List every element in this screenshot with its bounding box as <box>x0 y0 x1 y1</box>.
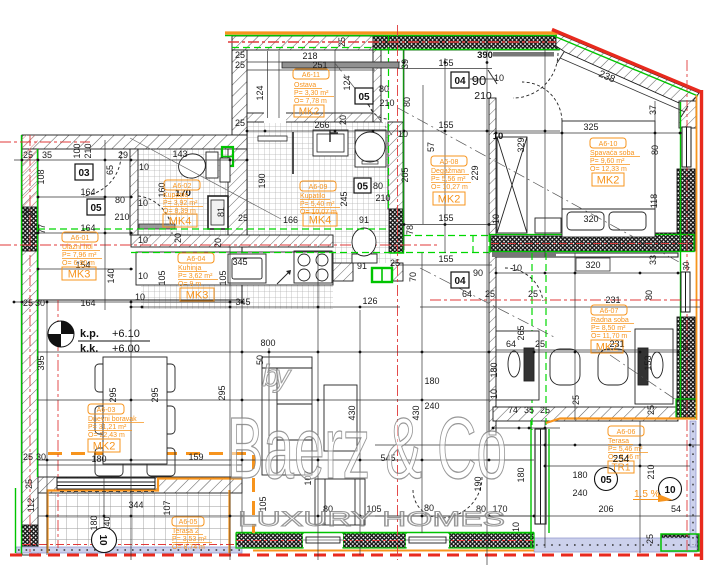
svg-text:O= 9 m: O= 9 m <box>178 281 201 288</box>
svg-text:153: 153 <box>643 355 653 370</box>
svg-text:P= 9,60 m²: P= 9,60 m² <box>590 158 625 165</box>
svg-text:180: 180 <box>89 515 99 530</box>
svg-text:MK2: MK2 <box>438 194 461 206</box>
svg-text:190: 190 <box>257 173 267 188</box>
svg-text:Degažman: Degažman <box>431 168 465 175</box>
svg-text:240: 240 <box>572 488 587 498</box>
svg-text:295: 295 <box>108 387 118 402</box>
svg-text:A6-05: A6-05 <box>179 519 198 526</box>
svg-text:35: 35 <box>42 150 52 160</box>
svg-text:10: 10 <box>511 522 521 532</box>
svg-text:80: 80 <box>402 97 412 107</box>
svg-text:155: 155 <box>438 213 453 223</box>
svg-text:159: 159 <box>188 452 203 462</box>
svg-text:k.p.: k.p. <box>80 328 99 340</box>
svg-text:25: 25 <box>485 289 495 299</box>
svg-text:265: 265 <box>516 325 526 340</box>
svg-text:112: 112 <box>26 498 36 512</box>
svg-text:155: 155 <box>438 254 453 264</box>
svg-text:80: 80 <box>373 181 383 191</box>
svg-text:10: 10 <box>97 534 108 546</box>
svg-text:25: 25 <box>337 37 347 47</box>
svg-text:1.5 %: 1.5 % <box>634 489 660 500</box>
svg-text:A6-04: A6-04 <box>187 256 206 263</box>
svg-text:MK4: MK4 <box>309 215 332 227</box>
svg-text:10: 10 <box>135 292 145 302</box>
svg-text:90: 90 <box>472 73 486 88</box>
svg-text:155: 155 <box>438 58 453 68</box>
svg-text:A6-11: A6-11 <box>302 72 320 79</box>
svg-text:37: 37 <box>648 105 658 115</box>
svg-text:25: 25 <box>390 258 400 268</box>
svg-text:Dnevni boravak: Dnevni boravak <box>88 416 137 423</box>
svg-text:10: 10 <box>512 263 522 273</box>
svg-text:140: 140 <box>106 268 116 283</box>
svg-text:05: 05 <box>358 92 370 103</box>
svg-text:10: 10 <box>398 129 408 139</box>
svg-text:05: 05 <box>357 182 369 193</box>
svg-text:10: 10 <box>138 271 148 281</box>
svg-text:166: 166 <box>283 215 298 225</box>
svg-text:P= 8,50 m²: P= 8,50 m² <box>591 325 626 332</box>
svg-text:33: 33 <box>648 255 658 265</box>
svg-text:124: 124 <box>342 75 352 90</box>
svg-text:210: 210 <box>379 98 394 108</box>
svg-text:MK2: MK2 <box>299 107 320 118</box>
svg-text:345: 345 <box>235 297 250 307</box>
svg-text:25: 25 <box>540 405 550 415</box>
svg-text:MK3: MK3 <box>186 290 209 302</box>
svg-text:P= 7,96 m²: P= 7,96 m² <box>62 252 97 259</box>
svg-text:206: 206 <box>598 504 613 514</box>
svg-text:78: 78 <box>405 225 415 235</box>
svg-text:107: 107 <box>162 500 172 515</box>
svg-text:80: 80 <box>644 290 654 300</box>
svg-text:80: 80 <box>115 195 125 205</box>
svg-text:LUXURY HOMES: LUXURY HOMES <box>238 508 505 531</box>
svg-text:05: 05 <box>600 475 612 486</box>
svg-text:105: 105 <box>157 270 167 285</box>
svg-text:MK2: MK2 <box>597 175 620 187</box>
svg-text:Kuhinja: Kuhinja <box>178 265 201 272</box>
svg-text:10: 10 <box>138 198 148 208</box>
svg-text:245: 245 <box>339 191 349 206</box>
svg-text:O= 22,43 m: O= 22,43 m <box>88 432 125 439</box>
svg-text:25: 25 <box>235 50 245 60</box>
svg-text:+6.00: +6.00 <box>112 343 140 355</box>
svg-text:180: 180 <box>489 362 499 377</box>
svg-text:164: 164 <box>80 187 95 197</box>
svg-text:A6-10: A6-10 <box>599 141 618 148</box>
svg-text:P= 5,46 m²: P= 5,46 m² <box>608 446 643 453</box>
svg-text:64: 64 <box>506 339 516 349</box>
svg-text:25: 25 <box>235 60 245 70</box>
svg-text:35: 35 <box>524 405 534 415</box>
svg-text:25: 25 <box>238 213 248 223</box>
svg-text:Kupatilo: Kupatilo <box>163 192 188 199</box>
svg-text:30: 30 <box>682 261 691 270</box>
svg-text:Baerz & Co: Baerz & Co <box>227 400 507 497</box>
svg-text:25: 25 <box>23 452 33 462</box>
svg-text:320: 320 <box>583 214 598 224</box>
svg-text:74: 74 <box>508 405 518 415</box>
svg-text:10: 10 <box>491 214 501 224</box>
svg-text:25: 25 <box>23 150 33 160</box>
svg-text:MK3: MK3 <box>68 269 91 281</box>
svg-text:Terasa: Terasa <box>608 438 629 445</box>
svg-text:25: 25 <box>24 479 34 489</box>
svg-text:65: 65 <box>105 165 115 175</box>
svg-text:A6-08: A6-08 <box>440 159 459 166</box>
svg-text:231: 231 <box>605 295 620 305</box>
svg-text:320: 320 <box>585 260 600 270</box>
svg-text:Radna soba: Radna soba <box>591 317 629 324</box>
svg-text:295: 295 <box>217 385 227 400</box>
svg-text:05: 05 <box>90 203 102 214</box>
svg-text:390: 390 <box>477 50 493 61</box>
svg-text:124: 124 <box>255 85 265 100</box>
svg-text:P= 3,62 m²: P= 3,62 m² <box>178 273 213 280</box>
svg-text:800: 800 <box>260 338 275 348</box>
svg-text:345: 345 <box>232 257 247 267</box>
svg-text:P= 3,53 m²: P= 3,53 m² <box>172 536 207 543</box>
svg-text:MK2: MK2 <box>93 441 116 453</box>
svg-text:210: 210 <box>114 212 129 222</box>
svg-text:MK4: MK4 <box>169 216 192 228</box>
svg-text:O= 6,90 m: O= 6,90 m <box>62 260 95 267</box>
svg-text:210: 210 <box>646 464 656 479</box>
svg-text:P= 5,56 m²: P= 5,56 m² <box>431 176 466 183</box>
svg-text:77: 77 <box>37 224 47 234</box>
svg-text:03: 03 <box>78 168 90 179</box>
svg-text:Ostava: Ostava <box>294 82 316 89</box>
svg-text:10: 10 <box>493 131 504 142</box>
svg-text:25: 25 <box>646 405 656 415</box>
svg-text:Kupatilo: Kupatilo <box>300 193 325 200</box>
svg-text:A6-07: A6-07 <box>600 308 619 315</box>
svg-text:180: 180 <box>91 454 106 464</box>
svg-text:81: 81 <box>216 207 226 217</box>
svg-text:329: 329 <box>516 137 526 152</box>
svg-text:54: 54 <box>671 504 681 514</box>
svg-text:20: 20 <box>338 115 348 125</box>
svg-text:30: 30 <box>682 342 691 351</box>
svg-text:254: 254 <box>613 454 630 465</box>
svg-text:91: 91 <box>359 215 369 225</box>
svg-text:155: 155 <box>438 120 453 130</box>
svg-text:325: 325 <box>583 122 598 132</box>
svg-text:10: 10 <box>489 389 499 399</box>
svg-text:25: 25 <box>23 298 33 308</box>
svg-text:100: 100 <box>72 143 82 158</box>
svg-text:108: 108 <box>36 169 46 184</box>
svg-text:210: 210 <box>83 143 93 158</box>
svg-text:39: 39 <box>400 59 410 69</box>
svg-text:344: 344 <box>128 500 143 510</box>
svg-text:10: 10 <box>138 235 148 245</box>
svg-text:+6.10: +6.10 <box>112 328 140 340</box>
svg-text:10: 10 <box>139 162 149 172</box>
svg-text:180: 180 <box>516 467 526 482</box>
svg-text:25: 25 <box>528 289 538 299</box>
svg-text:k.k.: k.k. <box>80 343 98 355</box>
svg-text:A6-09: A6-09 <box>309 184 328 191</box>
svg-text:91: 91 <box>357 261 367 271</box>
svg-text:25: 25 <box>235 118 245 128</box>
svg-text:by: by <box>262 358 293 393</box>
svg-text:30: 30 <box>35 298 45 308</box>
svg-text:126: 126 <box>362 296 377 306</box>
svg-text:70: 70 <box>408 272 418 282</box>
svg-text:164: 164 <box>80 298 95 308</box>
svg-text:Terasa 2: Terasa 2 <box>172 528 199 535</box>
svg-text:A6-06: A6-06 <box>617 429 636 436</box>
svg-text:25: 25 <box>23 207 33 217</box>
svg-text:229: 229 <box>470 165 480 180</box>
svg-text:A6-03: A6-03 <box>97 407 116 414</box>
svg-text:20: 20 <box>213 238 223 248</box>
svg-text:118: 118 <box>649 194 659 208</box>
svg-text:O= 11,70 m: O= 11,70 m <box>591 333 627 340</box>
svg-text:P= 3,92 m²: P= 3,92 m² <box>163 200 198 207</box>
svg-text:80: 80 <box>650 145 660 155</box>
svg-text:04: 04 <box>454 76 466 87</box>
svg-text:P= 31,21 m²: P= 31,21 m² <box>88 424 127 431</box>
svg-text:P= 3,30 m²: P= 3,30 m² <box>294 90 329 97</box>
svg-text:O= 10,27 m: O= 10,27 m <box>431 184 468 191</box>
svg-text:25: 25 <box>645 534 655 544</box>
svg-text:180: 180 <box>572 470 587 480</box>
svg-text:210: 210 <box>375 193 390 203</box>
svg-text:10: 10 <box>494 73 504 83</box>
svg-text:57: 57 <box>426 142 436 152</box>
svg-text:O= 12,33 m: O= 12,33 m <box>590 166 627 173</box>
svg-text:10: 10 <box>664 485 676 496</box>
svg-text:205: 205 <box>400 167 410 182</box>
svg-text:90: 90 <box>473 268 483 278</box>
svg-text:O= 7,78 m: O= 7,78 m <box>294 98 327 105</box>
svg-text:25: 25 <box>535 339 545 349</box>
svg-text:266: 266 <box>314 120 329 130</box>
svg-text:30: 30 <box>36 452 46 462</box>
svg-text:143: 143 <box>172 149 187 159</box>
svg-text:MK2: MK2 <box>596 342 619 354</box>
svg-text:A6-01: A6-01 <box>71 235 90 242</box>
svg-text:P= 5,40 m²: P= 5,40 m² <box>300 201 335 208</box>
svg-text:25: 25 <box>571 395 581 405</box>
svg-text:105: 105 <box>218 270 228 285</box>
svg-text:Spavaća soba: Spavaća soba <box>590 150 634 157</box>
svg-text:210: 210 <box>474 90 492 102</box>
svg-text:04: 04 <box>454 276 466 287</box>
svg-text:180: 180 <box>424 376 439 386</box>
svg-text:Ulazni hol: Ulazni hol <box>62 244 93 251</box>
svg-text:29: 29 <box>118 150 128 160</box>
svg-text:O= 8,74 m: O= 8,74 m <box>172 544 205 551</box>
svg-text:395: 395 <box>36 355 46 370</box>
svg-text:20: 20 <box>173 233 183 243</box>
svg-text:295: 295 <box>150 387 160 402</box>
svg-text:80: 80 <box>379 84 389 94</box>
svg-text:A6-02: A6-02 <box>173 183 192 190</box>
svg-text:64: 64 <box>462 289 472 299</box>
